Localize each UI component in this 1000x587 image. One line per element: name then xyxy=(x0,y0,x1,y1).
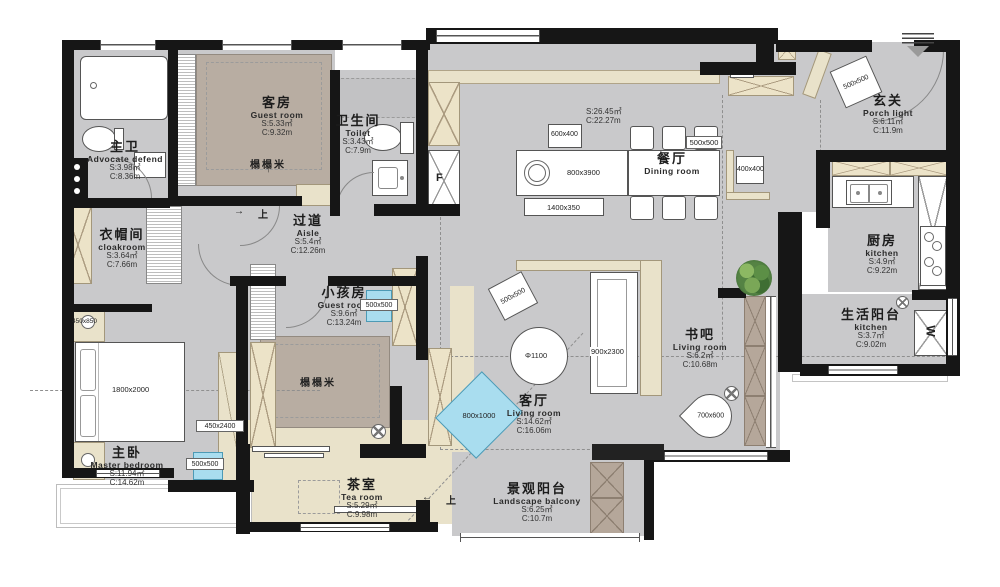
entry-arrow-icon xyxy=(902,33,934,59)
room-name-zh: 过道 xyxy=(263,214,353,229)
room-name-zh: 衣帽间 xyxy=(72,228,172,243)
room-perimeter: C:10.68m xyxy=(650,361,750,370)
dim-600x400: 600x400 xyxy=(551,131,578,138)
dim-island: 800x3900 xyxy=(567,168,600,177)
tatami-label: 榻榻米 xyxy=(300,374,336,389)
wall xyxy=(62,198,170,208)
dining-chair xyxy=(662,126,686,150)
room-label-cloakroom: 衣帽间 cloakroom S:3.64㎡ C:7.66m xyxy=(72,228,172,270)
room-label-master-bedroom: 主卧 Master bedroom S:11.94㎡ C:14.62m xyxy=(72,446,182,488)
window xyxy=(222,40,292,50)
room-perimeter: C:13.24m xyxy=(294,319,394,328)
dim-1400x350: 1400x350 xyxy=(547,203,580,212)
ref-line xyxy=(722,95,723,360)
stair-up-note: → 上 xyxy=(234,206,268,221)
fridge xyxy=(428,150,460,212)
wall xyxy=(644,450,654,540)
window xyxy=(948,298,957,356)
wall xyxy=(816,150,830,228)
dim-bed: 1800x2000 xyxy=(110,385,151,394)
wall xyxy=(416,256,428,360)
room-name-zh: 景观阳台 xyxy=(477,482,597,497)
left-arrow-icon: ← xyxy=(422,492,432,507)
counter-band xyxy=(428,70,720,84)
room-label-landscape-balcony: 景观阳台 Landscape balcony S:6.25㎡ C:10.7m xyxy=(477,482,597,524)
island-sink-inner xyxy=(528,164,546,182)
room-name-zh: 卫生间 xyxy=(316,114,400,129)
room-name-zh: 主卧 xyxy=(72,446,182,461)
wall xyxy=(416,42,428,214)
room-label-aisle: 过道 Aisle S:5.4㎡ C:12.26m xyxy=(263,214,353,256)
dim-sofa: 900x2300 xyxy=(590,347,625,356)
bathtub-drain xyxy=(90,82,97,89)
window xyxy=(100,40,156,50)
washer-label: W xyxy=(924,325,938,336)
wall xyxy=(828,150,948,162)
room-label-living: 客厅 Living room S:14.62㎡ C:16.06m xyxy=(484,394,584,436)
window xyxy=(766,296,776,448)
room-label-book-bar: 书吧 Living room S:6.2㎡ C:10.68m xyxy=(650,328,750,370)
fridge-label: F xyxy=(436,172,443,184)
dining-chair xyxy=(630,126,654,150)
room-perimeter: C:7.66m xyxy=(72,261,172,270)
dim-living-500: 500x500 xyxy=(499,287,526,306)
room-perimeter: C:12.26m xyxy=(263,247,353,256)
window xyxy=(300,524,390,531)
bench xyxy=(726,192,770,200)
tea-shelf xyxy=(252,446,330,452)
wall xyxy=(776,40,872,52)
room-perimeter: C:10.7m xyxy=(477,515,597,524)
cabinet xyxy=(250,342,276,448)
tv-cabinet xyxy=(592,444,664,460)
porch-cabinet xyxy=(728,76,794,96)
window xyxy=(342,40,402,50)
window xyxy=(664,452,768,460)
dining-stats: S:26.45㎡ C:22.27m xyxy=(586,108,656,126)
wall xyxy=(390,386,402,446)
room-perimeter: C:9.98m xyxy=(312,511,412,520)
room-label-porch: 玄关 Porch light S:6.11㎡ C:11.9m xyxy=(838,94,938,136)
room-label-tea-room: 茶室 Tea room S:5.29㎡ C:9.98m xyxy=(312,478,412,520)
dim-wardrobe: 450x2400 xyxy=(196,420,244,432)
room-perimeter: C:9.32m xyxy=(227,129,327,138)
wall xyxy=(360,444,426,458)
dining-chair xyxy=(630,196,654,220)
room-label-dining: 餐厅 Dining room xyxy=(622,152,722,176)
toilet-tank xyxy=(400,122,414,154)
wc-sink xyxy=(372,160,408,196)
room-perimeter: C:22.27m xyxy=(586,117,656,126)
room-perimeter: C:8.36m xyxy=(70,173,180,182)
room-perimeter: C:7.9m xyxy=(316,147,400,156)
wall xyxy=(912,290,948,300)
room-perimeter: C:9.22m xyxy=(832,267,932,276)
stair-up-note: ← 上 xyxy=(422,492,456,507)
kitchen-cabinet xyxy=(890,160,948,176)
ref-line xyxy=(440,449,595,450)
room-label-kitchen: 厨房 kitchen S:4.9㎡ C:9.22m xyxy=(832,234,932,276)
dim-porch-500: 500x500 xyxy=(842,73,869,90)
up-label: 上 xyxy=(446,492,456,507)
room-name-zh: 客房 xyxy=(227,96,327,111)
room-name-zh: 餐厅 xyxy=(622,152,722,167)
room-label-toilet: 卫生间 Toilet S:3.43㎡ C:7.9m xyxy=(316,114,400,156)
room-perimeter: C:9.02m xyxy=(821,341,921,350)
dim-kids-box: 500x500 xyxy=(360,299,398,311)
room-name-zh: 茶室 xyxy=(312,478,412,493)
room-perimeter: C:14.62m xyxy=(72,479,182,488)
dim-fan-chair: 700x600 xyxy=(697,413,724,420)
kitchen-cabinet xyxy=(832,160,890,176)
room-name-zh: 玄关 xyxy=(838,94,938,109)
dining-chair xyxy=(694,196,718,220)
up-arrow-icon: ↑ xyxy=(266,164,271,175)
dim-nightstand: 450x850 xyxy=(72,318,97,325)
wall xyxy=(700,62,796,75)
room-name-zh: 书吧 xyxy=(650,328,750,343)
cabinet xyxy=(428,82,460,146)
room-name-zh: 生活阳台 xyxy=(821,308,921,323)
lamp-icon xyxy=(371,424,386,439)
bench xyxy=(726,150,734,198)
room-label-service-balcony: 生活阳台 kitchen S:3.7㎡ C:9.02m xyxy=(821,308,921,350)
wall xyxy=(778,212,802,372)
room-name-zh: 主卫 xyxy=(70,140,180,155)
sofa xyxy=(590,272,638,394)
window xyxy=(828,366,898,374)
kitchen-sink xyxy=(846,180,892,205)
plant-icon xyxy=(736,260,772,296)
room-label-guest-room: 客房 Guest room S:5.33㎡ C:9.32m xyxy=(227,96,327,138)
window xyxy=(460,533,640,542)
up-label: 上 xyxy=(258,206,268,221)
room-name-en: Dining room xyxy=(622,167,722,177)
tea-shelf xyxy=(264,453,324,458)
shower-area xyxy=(336,78,420,118)
wall xyxy=(62,304,152,312)
wall xyxy=(168,196,302,206)
dining-chair xyxy=(662,196,686,220)
bookshelf xyxy=(744,396,766,446)
lamp-icon xyxy=(724,386,739,401)
dim-master-box: 500x500 xyxy=(186,458,224,470)
room-name-zh: 客厅 xyxy=(484,394,584,409)
wall xyxy=(756,28,774,66)
room-perimeter: C:11.9m xyxy=(838,127,938,136)
floor-plan: F 800x3900 600x400 1400x350 500x500 xyxy=(0,0,1000,587)
dim-400x400: 400x400 xyxy=(737,166,764,173)
room-perimeter: C:16.06m xyxy=(484,427,584,436)
room-name-zh: 厨房 xyxy=(832,234,932,249)
right-arrow-icon: → xyxy=(234,206,244,221)
dim-circle: Φ1100 xyxy=(525,351,547,360)
window xyxy=(436,30,540,42)
room-label-master-bath: 主卫 Advocate defend S:3.98㎡ C:8.36m xyxy=(70,140,180,182)
wall xyxy=(374,204,460,216)
dim-chair-500: 500x500 xyxy=(686,136,722,149)
